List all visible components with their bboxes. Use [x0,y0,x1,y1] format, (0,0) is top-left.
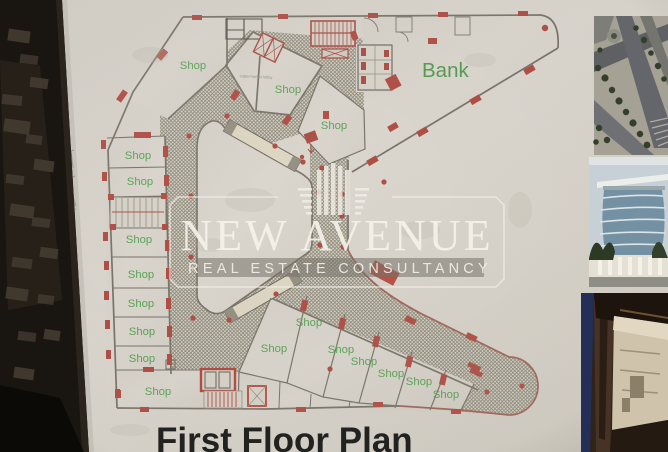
svg-text:NEW AVENUE: NEW AVENUE [180,211,493,260]
svg-text:First Floor Plan: First Floor Plan [156,421,413,452]
svg-text:REAL ESTATE CONSULTANCY: REAL ESTATE CONSULTANCY [188,261,492,277]
